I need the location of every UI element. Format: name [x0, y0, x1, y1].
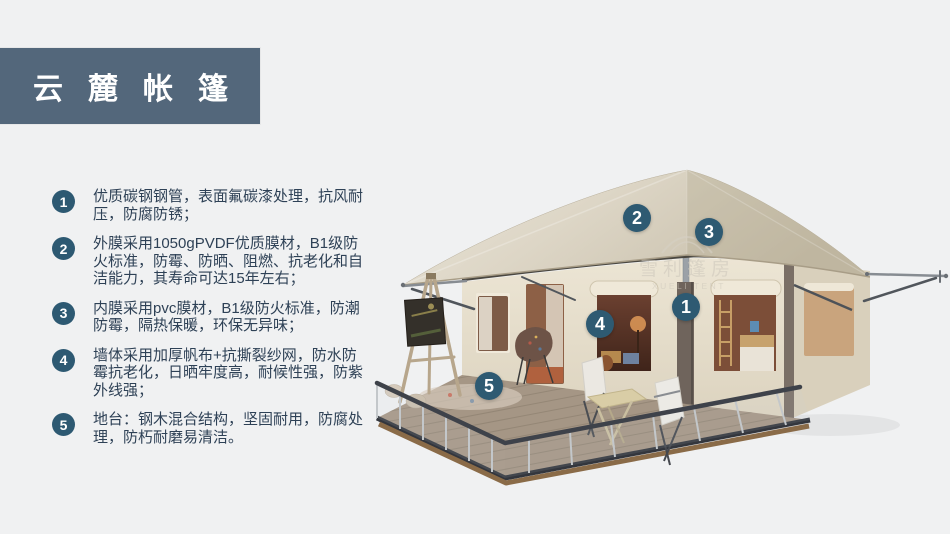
rug	[418, 384, 522, 410]
watermark-en: XUELI TENT	[652, 281, 726, 291]
painting	[405, 298, 446, 347]
feature-number-badge: 4	[52, 349, 75, 372]
watermark-cn: 雪利篷房	[639, 258, 735, 280]
feature-text: 内膜采用pvc膜材，B1级防火标准，防潮防霉，隔热保暖，环保无异味；	[93, 300, 365, 335]
product-slide: 云麓帐篷 1 优质碳钢钢管，表面氟碳漆处理，抗风耐压，防腐防锈； 2 外膜采用1…	[0, 0, 950, 534]
callout-badge-5: 5	[475, 372, 503, 400]
tent-render: 雪利篷房 XUELI TENT	[370, 125, 950, 490]
feature-item-2: 2 外膜采用1050gPVDF优质膜材，B1级防火标准，防霉、防晒、阻燃、抗老化…	[52, 235, 372, 288]
feature-number-badge: 1	[52, 190, 75, 213]
feature-text: 墙体采用加厚帆布+抗撕裂纱网，防水防霉抗老化，日晒牢度高，耐候性强，防紫外线强；	[93, 347, 365, 400]
tent-illustration: 雪利篷房 XUELI TENT	[370, 125, 950, 490]
feature-text: 外膜采用1050gPVDF优质膜材，B1级防火标准，防霉、防晒、阻燃、抗老化和自…	[93, 235, 365, 288]
feature-item-1: 1 优质碳钢钢管，表面氟碳漆处理，抗风耐压，防腐防锈；	[52, 188, 372, 223]
feature-number-badge: 3	[52, 302, 75, 325]
feature-item-3: 3 内膜采用pvc膜材，B1级防火标准，防潮防霉，隔热保暖，环保无异味；	[52, 300, 372, 335]
callout-badge-4: 4	[586, 310, 614, 338]
page-title: 云麓帐篷	[0, 48, 260, 124]
callout-badge-3: 3	[695, 218, 723, 246]
feature-item-4: 4 墙体采用加厚帆布+抗撕裂纱网，防水防霉抗老化，日晒牢度高，耐候性强，防紫外线…	[52, 347, 372, 400]
callout-badge-2: 2	[623, 204, 651, 232]
feature-list: 1 优质碳钢钢管，表面氟碳漆处理，抗风耐压，防腐防锈； 2 外膜采用1050gP…	[52, 188, 372, 458]
feature-text: 优质碳钢钢管，表面氟碳漆处理，抗风耐压，防腐防锈；	[93, 188, 365, 223]
feature-number-badge: 2	[52, 237, 75, 260]
page-title-text: 云麓帐篷	[0, 64, 253, 108]
feature-text: 地台：钢木混合结构，坚固耐用，防腐处理，防朽耐磨易清洁。	[93, 411, 365, 446]
feature-item-5: 5 地台：钢木混合结构，坚固耐用，防腐处理，防朽耐磨易清洁。	[52, 411, 372, 446]
feature-number-badge: 5	[52, 413, 75, 436]
callout-badge-1: 1	[672, 293, 700, 321]
